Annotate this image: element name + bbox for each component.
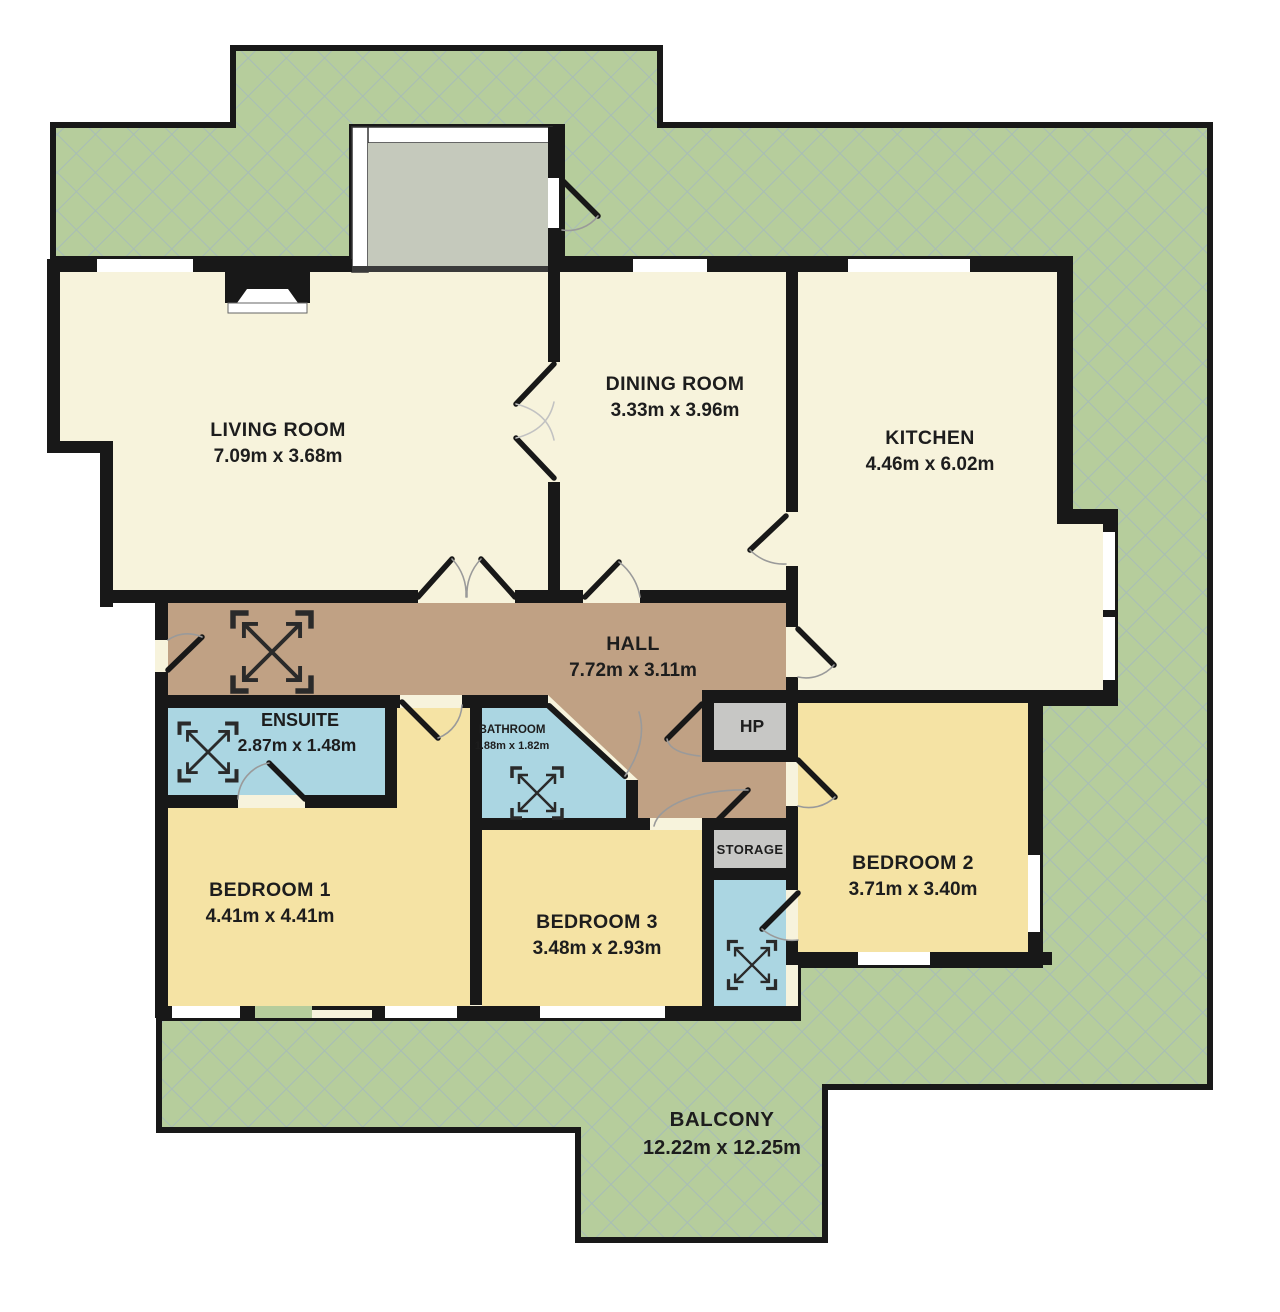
porch-sill xyxy=(352,266,562,272)
balcony-dims: 12.22m x 12.25m xyxy=(643,1137,801,1159)
living-window xyxy=(97,259,193,272)
bedroom1-label: BEDROOM 1 xyxy=(209,879,331,901)
bedroom2-floor xyxy=(798,703,1028,952)
hp-label: HP xyxy=(740,716,765,736)
kitchen-window xyxy=(848,259,970,272)
floorplan-page: LIVING ROOM 7.09m x 3.68m DINING ROOM 3.… xyxy=(0,0,1280,1312)
bathroom-dims: 1.88m x 1.82m xyxy=(475,740,550,752)
dining-room-label: DINING ROOM xyxy=(606,373,745,395)
kitchen-label: KITCHEN xyxy=(885,427,974,449)
dining-room-dims: 3.33m x 3.96m xyxy=(611,400,740,421)
entrance-porch xyxy=(352,127,562,272)
bedroom3-dims: 3.48m x 2.93m xyxy=(533,938,662,959)
kitchen-bump-window-upper xyxy=(1103,532,1115,610)
porch-deck xyxy=(368,143,548,268)
bedroom2-label: BEDROOM 2 xyxy=(852,852,974,874)
porch-glazing-top xyxy=(352,127,552,143)
storage-label: STORAGE xyxy=(717,842,784,857)
living-room-label: LIVING ROOM xyxy=(210,419,345,441)
hall-dims: 7.72m x 3.11m xyxy=(569,660,697,681)
bedroom1-window-right xyxy=(385,1006,457,1018)
bedroom1-window-left xyxy=(172,1006,240,1018)
kitchen-dims: 4.46m x 6.02m xyxy=(866,454,995,475)
porch-glazing-left xyxy=(352,127,368,272)
bedroom1-dims: 4.41m x 4.41m xyxy=(206,906,335,927)
bedroom2-window-bottom xyxy=(858,952,930,965)
fireplace xyxy=(225,259,310,313)
hall-label: HALL xyxy=(606,633,660,655)
ensuite-dims: 2.87m x 1.48m xyxy=(238,735,357,755)
balcony-label: BALCONY xyxy=(670,1108,775,1131)
bedroom2-window-right xyxy=(1028,855,1040,932)
dining-window xyxy=(633,259,707,272)
bedroom2-dims: 3.71m x 3.40m xyxy=(849,879,978,900)
floorplan-drawing: LIVING ROOM 7.09m x 3.68m DINING ROOM 3.… xyxy=(0,0,1280,1312)
living-room-dims: 7.09m x 3.68m xyxy=(214,446,343,467)
bedroom3-label: BEDROOM 3 xyxy=(536,911,658,933)
ensuite-label: ENSUITE xyxy=(261,710,339,730)
kitchen-bump-window-lower xyxy=(1103,617,1115,680)
bedroom3-window xyxy=(540,1006,665,1018)
dining-room-floor xyxy=(560,272,786,590)
bathroom-label: BATHROOM xyxy=(479,724,546,736)
